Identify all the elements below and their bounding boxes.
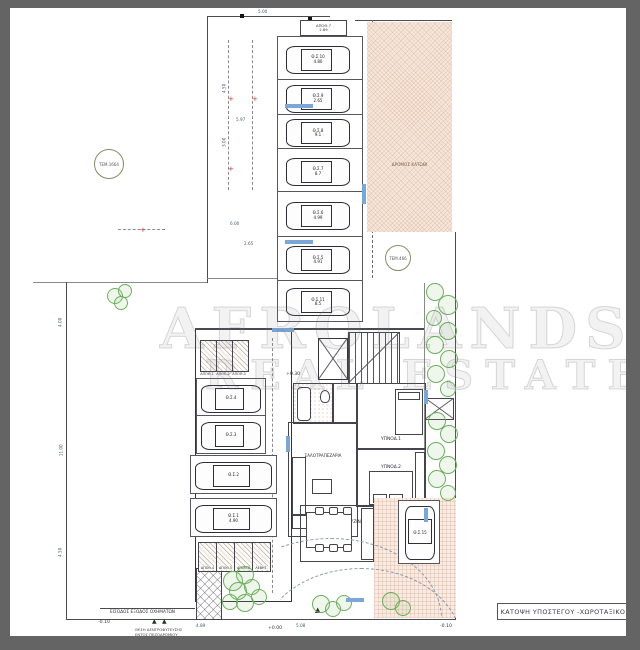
- chair-icon: [315, 507, 324, 515]
- survey-mark: [240, 14, 244, 18]
- parking-space-area: 9.1: [315, 133, 321, 137]
- storage-room: [232, 340, 249, 372]
- parking-space-id: Θ.Σ.4: [226, 396, 237, 400]
- bed-icon: [395, 389, 423, 435]
- parcel-label: ΤΕΜ.466: [389, 256, 406, 261]
- plot-line-left-lower: [66, 282, 67, 620]
- wall-accent: [362, 184, 366, 204]
- parking-space-label: Θ.Σ.54.91: [287, 247, 349, 273]
- dimension-cross-icon: +: [228, 166, 234, 173]
- dimension-label: 11.00: [60, 444, 65, 456]
- tree-icon: [114, 296, 128, 310]
- dim-line-v2: [252, 40, 253, 190]
- storage-room: ΑΠΟΘ.4: [198, 542, 217, 572]
- dimension-label: 4.50: [58, 548, 63, 557]
- dimension-label: 5.97: [236, 118, 245, 123]
- road-label: ΔΡΟΜΟΣ ΚΑΤΩΘΙ: [367, 162, 452, 167]
- tree-symbol-icon: ▲: [162, 619, 167, 625]
- car-icon: Θ.Σ.54.91: [286, 246, 350, 274]
- car-icon: Θ.Σ.89.1: [286, 119, 350, 147]
- wall-accent: [285, 104, 313, 108]
- level-entry: -0.10: [98, 620, 110, 625]
- parking-space-area: 8.7: [315, 172, 321, 176]
- parking-space-label: Θ.Σ.2: [196, 463, 271, 489]
- wall-accent: [346, 598, 364, 602]
- parking-stall: Θ.Σ.89.1: [277, 114, 363, 150]
- parking-space-label: Θ.Σ.104.80: [287, 47, 349, 73]
- parking-stall: Θ.Σ.104.80: [277, 36, 363, 81]
- tree-symbol-icon: ▲: [152, 619, 157, 625]
- toilet-icon: [320, 390, 330, 403]
- parking-space-label: Θ.Σ.78.7: [287, 159, 349, 185]
- chair-icon: [329, 507, 338, 515]
- plot-step-line: [207, 278, 277, 279]
- tree-icon: [395, 600, 411, 616]
- tree-icon: [251, 589, 267, 605]
- parking-stall: Θ.Σ.118.5: [277, 280, 363, 322]
- planting-note-line2: ΕΝΤΟΣ ΠΕΖΟΔΡΟΜΙΟΥ: [135, 633, 182, 636]
- bedroom-1: ΥΠΝΟΔ.1: [356, 383, 426, 450]
- parking-space-label: Θ.Σ.89.1: [287, 120, 349, 146]
- chair-icon: [343, 544, 352, 552]
- window-frame: ΔΡΟΜΟΣ ΚΑΤΩΘΙ ΤΕΜ.1664 ΤΕΜ.466 ΑΠΟΘ.7 2.…: [0, 0, 640, 650]
- parking-space-area: 2.65: [314, 99, 323, 103]
- elevator-shaft: [318, 338, 348, 380]
- stair-diagonal-line: [349, 332, 399, 382]
- parking-space-area: 4.80: [314, 60, 323, 64]
- storage-room: ΑΠΟΘ.5: [216, 542, 235, 572]
- parking-space-label: Θ.Σ.15: [406, 507, 434, 559]
- planting-note: ΘΕΣΗ ΔΕΝΤΡΟΦΥΤΕΥΣΗΣ ΕΝΤΟΣ ΠΕΖΟΔΡΟΜΙΟΥ: [135, 628, 182, 636]
- wall-accent: [286, 436, 290, 452]
- plot-line-left-upper: [207, 16, 208, 283]
- tree-icon: [440, 381, 456, 397]
- storage-label: ΑΠΟΘ.3: [228, 372, 250, 376]
- wall-accent: [285, 240, 313, 244]
- bathroom: [293, 383, 334, 424]
- car-icon: Θ.Σ.2: [195, 462, 272, 490]
- dimension-label: 5.00: [258, 10, 267, 15]
- chair-icon: [343, 507, 352, 515]
- car-icon: Θ.Σ.14.90: [195, 505, 272, 533]
- dimension-label: 4.89: [196, 624, 205, 629]
- ramp-hatch: [196, 568, 222, 620]
- parking-stall: Θ.Σ.4: [196, 378, 266, 417]
- level-core: +0.30: [286, 372, 300, 377]
- parking-stall: Θ.Σ.14.90: [190, 498, 277, 537]
- parking-space-label: Θ.Σ.118.5: [287, 289, 349, 315]
- dimension-label: 6.00: [230, 222, 239, 227]
- storage-room: [200, 340, 217, 372]
- parking-space-label: Θ.Σ.14.90: [196, 506, 271, 532]
- street-line: [33, 282, 207, 283]
- parking-stall: Θ.Σ.78.7: [277, 148, 363, 193]
- entrance-label: ΕΙΣΟΔΟΣ ΕΞΟΔΟΣ ΟΧΗΜΑΤΩΝ: [110, 610, 175, 615]
- plot-line-top2: [355, 20, 452, 21]
- bedroom1-label: ΥΠΝΟΔ.1: [357, 437, 425, 442]
- parking-space-area: 4.91: [314, 260, 323, 264]
- tree-icon: [440, 485, 456, 501]
- chair-icon: [329, 544, 338, 552]
- wall-accent: [424, 390, 428, 404]
- entrance-line: [100, 608, 195, 609]
- parking-stall: Θ.Σ.92.65: [277, 79, 363, 116]
- drawing-area: ΔΡΟΜΟΣ ΚΑΤΩΘΙ ΤΕΜ.1664 ΤΕΜ.466 ΑΠΟΘ.7 2.…: [10, 8, 626, 636]
- car-icon: Θ.Σ.4: [201, 385, 261, 413]
- dimension-label: 3.00: [222, 138, 227, 147]
- drawing-title: ΚΑΤΟΨΗ ΥΠΟΣΤΕΓΟΥ -ΧΩΡΟΤΑΞΙΚΟ: [501, 608, 626, 616]
- parking-space-id: Θ.Σ.2: [228, 473, 239, 477]
- parking-space-id: Θ.Σ.15: [413, 531, 426, 535]
- parking-stall: Θ.Σ.2: [190, 455, 277, 494]
- parking-space-label: Θ.Σ.3: [202, 423, 260, 449]
- level-right: -0.10: [440, 624, 452, 629]
- storage-label: ΑΠΟΘ.5: [217, 566, 234, 570]
- chair-icon: [315, 544, 324, 552]
- dimension-cross-icon: +: [252, 96, 258, 103]
- parcel-circle-1: ΤΕΜ.1664: [94, 149, 124, 179]
- car-icon: Θ.Σ.104.80: [286, 46, 350, 74]
- storage-room: ΛΕΒΗΤ.: [252, 542, 271, 572]
- hallway: [332, 383, 358, 424]
- parking-space-area: 4.90: [229, 519, 238, 523]
- wall-accent: [272, 328, 294, 332]
- tree-icon: [440, 350, 458, 368]
- title-box: ΚΑΤΟΨΗ ΥΠΟΣΤΕΓΟΥ -ΧΩΡΟΤΑΞΙΚΟ: [497, 603, 626, 620]
- parking-space-label: Θ.Σ.4: [202, 386, 260, 412]
- level-mid: +0.00: [268, 626, 282, 631]
- car-icon: Θ.Σ.92.65: [286, 85, 350, 113]
- parking-space-label: Θ.Σ.64.99: [287, 203, 349, 229]
- tree-icon: [438, 295, 458, 315]
- wardrobe-icon: [415, 452, 425, 504]
- dimension-label: 5.08: [296, 624, 305, 629]
- pillow-icon: [398, 392, 420, 400]
- parcel-circle-2: ΤΕΜ.466: [385, 245, 411, 271]
- dimension-label: 4.00: [58, 318, 63, 327]
- bathtub-icon: [297, 387, 311, 421]
- building-top-wall: [195, 328, 424, 330]
- storage-label: ΑΠΟΘ.4: [199, 566, 216, 570]
- staircase: [348, 332, 400, 384]
- storage-area: 2.89: [319, 28, 327, 32]
- dimension-label: 4.50: [222, 84, 227, 93]
- car-icon: Θ.Σ.3: [201, 422, 261, 450]
- parcel-label: ΤΕΜ.1664: [99, 162, 119, 167]
- car-icon: Θ.Σ.78.7: [286, 158, 350, 186]
- car-icon: Θ.Σ.118.5: [286, 288, 350, 316]
- dimension-cross-icon: +: [228, 96, 234, 103]
- parking-space-area: 4.99: [314, 216, 323, 220]
- plot-line-bottom: [66, 619, 456, 620]
- parking-space-area: 8.5: [315, 302, 321, 306]
- dimension-cross-icon: +: [140, 227, 146, 234]
- parking-space-id: Θ.Σ.3: [226, 433, 237, 437]
- dimension-label: 2.65: [244, 242, 253, 247]
- coffee-table-icon: [312, 479, 332, 494]
- car-icon: Θ.Σ.64.99: [286, 202, 350, 230]
- wall-accent: [424, 508, 428, 522]
- storage-label: ΛΕΒΗΤ.: [253, 566, 270, 570]
- car-icon: Θ.Σ.15: [405, 506, 435, 560]
- storage-room: [216, 340, 233, 372]
- tree-icon: [440, 425, 458, 443]
- road-hatch-area: ΔΡΟΜΟΣ ΚΑΤΩΘΙ: [367, 22, 452, 232]
- tree-icon: [427, 365, 445, 383]
- tree-icon: [439, 322, 457, 340]
- tree-icon: [426, 310, 442, 326]
- storage-room-7: ΑΠΟΘ.7 2.89: [300, 20, 347, 36]
- parking-stall: Θ.Σ.15: [398, 500, 440, 564]
- tree-icon: [426, 336, 444, 354]
- parking-stall: Θ.Σ.3: [196, 415, 266, 454]
- parking-stall: Θ.Σ.64.99: [277, 191, 363, 238]
